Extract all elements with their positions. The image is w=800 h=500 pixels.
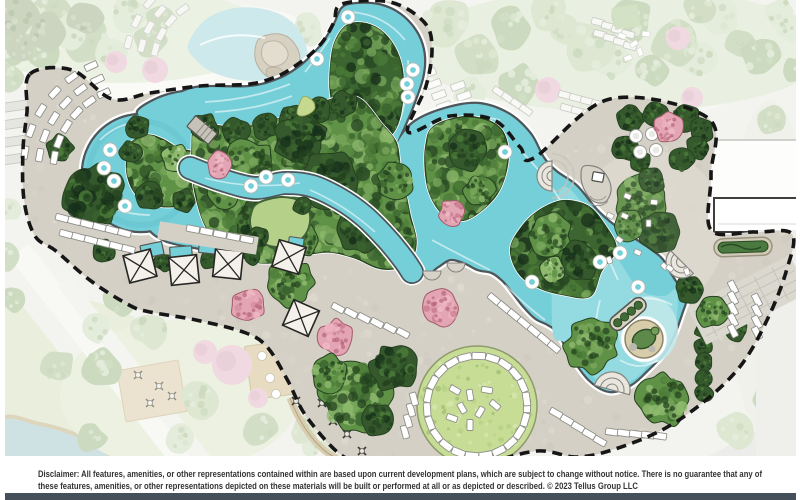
svg-text:these features, amenities, or: these features, amenities, or other repr… [38,481,638,492]
svg-text:Disclaimer: All features, amen: Disclaimer: All features, amenities, or … [38,469,763,480]
